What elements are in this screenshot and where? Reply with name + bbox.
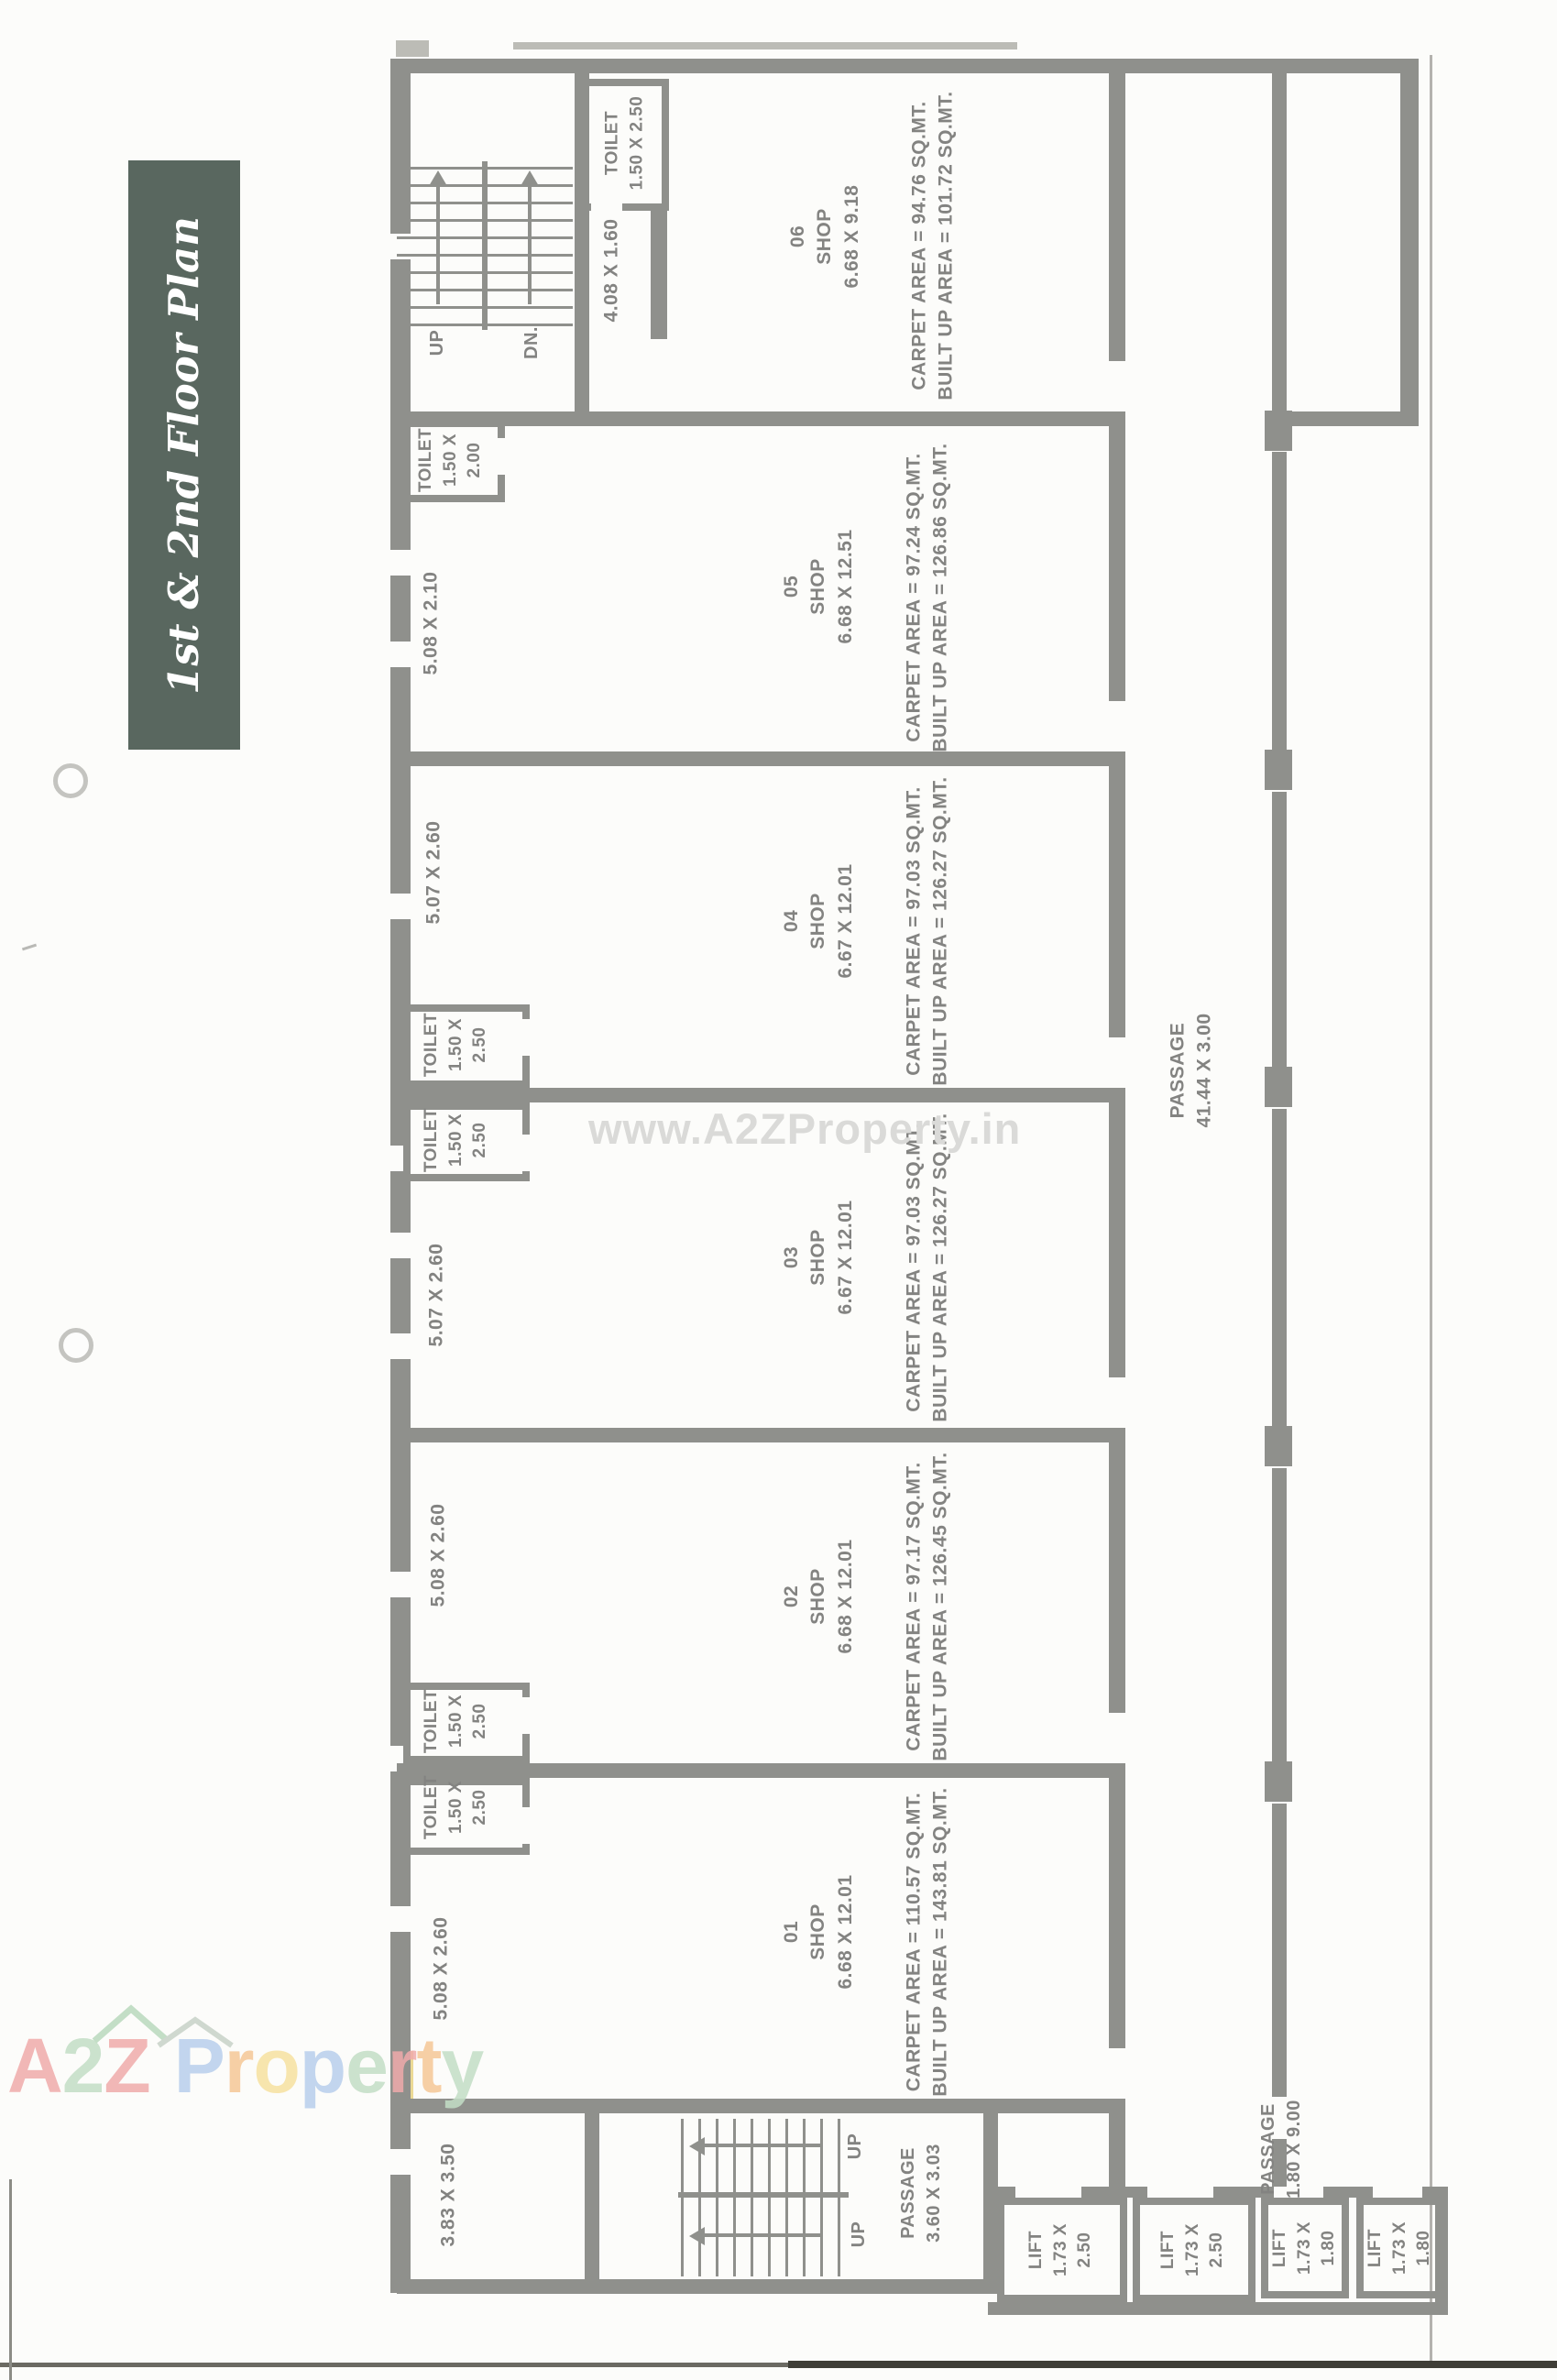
logo-letter: o (253, 2022, 299, 2111)
carpet-area: CARPET AREA = 97.17 SQ.MT. (904, 1462, 925, 1750)
shop-number: 03 (781, 1246, 802, 1268)
lift-door-gap (1373, 2187, 1422, 2198)
shop-05-info: 05 SHOP 6.68 X 12.51 (778, 529, 859, 643)
shop-size: 6.67 X 12.01 (835, 1200, 856, 1314)
shop-type: SHOP (807, 1568, 828, 1625)
wall-divider-06-05 (397, 411, 1125, 426)
shop-size: 6.68 X 9.18 (841, 185, 862, 289)
shop-type: SHOP (807, 893, 828, 949)
wall-shop-front (1109, 1763, 1125, 2048)
punch-hole (59, 1328, 93, 1363)
scan-edge-line (9, 2179, 12, 2380)
wall-colonnade (1272, 73, 1287, 412)
scan-edge-line (788, 2361, 1557, 2368)
shop-type: SHOP (807, 1903, 828, 1960)
shop-size: 6.68 X 12.51 (835, 529, 856, 643)
lift-label: LIFT 1.73 X 2.50 (1157, 2223, 1230, 2276)
watermark-text: www.A2ZProperty.in (588, 1103, 1021, 1154)
shop-04-areas: CARPET AREA = 97.03 SQ.MT. BUILT UP AREA… (901, 776, 955, 1085)
stair-up-arrow-icon (689, 2137, 705, 2155)
shop-number: 05 (781, 576, 802, 598)
wall-divider-04-03 (397, 1088, 1125, 1102)
punch-hole (53, 763, 88, 798)
column (1265, 750, 1292, 790)
shop-02-info: 02 SHOP 6.68 X 12.01 (778, 1539, 859, 1653)
passage-lift-label: PASSAGE 1.80 X 9.00 (1255, 2100, 1307, 2199)
shop-06-info: 06 SHOP 6.68 X 9.18 (784, 185, 865, 289)
stair-up-arrow-icon (429, 170, 447, 186)
wall-divider-01-stair (397, 2099, 1125, 2113)
window-gap (389, 642, 412, 667)
shop-01-info: 01 SHOP 6.68 X 12.01 (778, 1874, 859, 1989)
toilet-label: TOILET 1.50 X 2.50 (600, 96, 649, 191)
builtup-area: BUILT UP AREA = 101.72 SQ.MT. (936, 91, 957, 400)
logo-letter: y (441, 2022, 483, 2111)
builtup-area: BUILT UP AREA = 143.81 SQ.MT. (930, 1787, 951, 2096)
logo-letter: p (300, 2022, 345, 2111)
lift-door-gap (1147, 2187, 1213, 2198)
wall-corner-room-right (585, 2113, 599, 2279)
door-gap (519, 1019, 530, 1056)
logo-letter: t (416, 2022, 441, 2111)
wall-colonnade (1272, 792, 1287, 1067)
scanned-floor-plan-page: 1st & 2nd Floor Plan (0, 0, 1557, 2380)
wall-shop-front (1109, 751, 1125, 1037)
pen-mark (22, 944, 37, 951)
wall-lift-right (1435, 2187, 1448, 2315)
logo-letter: Z (104, 2022, 149, 2111)
shop-04-rear-dim: 5.07 X 2.60 (420, 821, 446, 925)
wall-top (392, 59, 1419, 73)
wall-shop06-back (651, 209, 667, 339)
window-gap (389, 550, 412, 576)
window-gap (389, 1333, 412, 1359)
column (1265, 1426, 1292, 1466)
wall-colonnade (1272, 1468, 1287, 1761)
stair-dn-arrow-icon (521, 170, 539, 186)
column (1265, 1761, 1292, 1802)
shop-number: 04 (781, 910, 802, 932)
carpet-area: CARPET AREA = 110.57 SQ.MT. (904, 1793, 925, 2091)
wall-divider-03-02 (397, 1428, 1125, 1442)
lift-label: LIFT 1.73 X 1.80 (1364, 2221, 1437, 2275)
page-title: 1st & 2nd Floor Plan (157, 171, 212, 740)
column (1265, 1067, 1292, 1107)
shop-01-areas: CARPET AREA = 110.57 SQ.MT. BUILT UP ARE… (901, 1787, 955, 2096)
shop-01-rear-dim: 5.08 X 2.60 (427, 1917, 454, 2021)
lift-label: LIFT 1.73 X 1.80 (1268, 2221, 1342, 2275)
brand-logo: A2ZProperty (7, 2022, 483, 2111)
stair-arrow-shaft (704, 2144, 823, 2147)
wall-stair-lift-divider (983, 2113, 998, 2293)
lobby-dim-label: 4.08 X 1.60 (598, 219, 624, 323)
window-gap (389, 1233, 412, 1258)
stair-arrow-shaft (436, 185, 440, 304)
stair-up-label: UP (842, 2133, 868, 2160)
staircase-bottom (681, 2119, 846, 2276)
logo-letter: A (7, 2022, 62, 2111)
wall-top-notch (396, 40, 429, 57)
wall-divider-05-04 (397, 751, 1125, 766)
stair-arrow-shaft (528, 185, 532, 304)
toilet-label: TOILET 1.50 X 2.50 (420, 1775, 493, 1839)
wall-right-chamber (1272, 411, 1419, 426)
logo-letter: e (345, 2022, 388, 2111)
stair-up-arrow-icon (689, 2227, 705, 2245)
shop-number: 06 (787, 225, 808, 247)
logo-letter: P (174, 2022, 225, 2111)
stair-dn-label: DN. (519, 326, 544, 359)
shop-number: 02 (781, 1585, 802, 1607)
column (1265, 411, 1292, 451)
toilet-label: TOILET 1.50 X 2.00 (414, 428, 488, 492)
logo-letter: 2 (62, 2022, 104, 2111)
shop-02-rear-dim: 5.08 X 2.60 (424, 1504, 451, 1607)
builtup-area: BUILT UP AREA = 126.27 SQ.MT. (930, 1113, 951, 1421)
shop-type: SHOP (807, 1229, 828, 1286)
toilet-label: TOILET 1.50 X 2.50 (420, 1013, 493, 1077)
wall-top-step (513, 42, 1017, 49)
logo-letter: r (388, 2022, 417, 2111)
toilet-label: TOILET 1.50 X 2.50 (420, 1108, 493, 1172)
carpet-area: CARPET AREA = 97.03 SQ.MT. (904, 1123, 925, 1411)
carpet-area: CARPET AREA = 97.24 SQ.MT. (904, 453, 925, 741)
builtup-area: BUILT UP AREA = 126.86 SQ.MT. (930, 443, 951, 751)
shop-05-areas: CARPET AREA = 97.24 SQ.MT. BUILT UP AREA… (901, 443, 955, 751)
stair-up-label: UP (846, 2221, 872, 2248)
window-gap (389, 2149, 412, 2175)
shop-03-areas: CARPET AREA = 97.03 SQ.MT. BUILT UP AREA… (901, 1113, 955, 1421)
builtup-area: BUILT UP AREA = 126.45 SQ.MT. (930, 1452, 951, 1760)
door-gap (519, 1697, 530, 1734)
door-gap (519, 1135, 530, 1171)
shop-05-rear-dim: 5.08 X 2.10 (417, 572, 444, 675)
wall-bottom (397, 2279, 997, 2294)
shop-03-info: 03 SHOP 6.67 X 12.01 (778, 1200, 859, 1314)
wall-right-top (1400, 59, 1419, 418)
wall-divider-02-01 (397, 1763, 1125, 1778)
passage-main-label: PASSAGE 41.44 X 3.00 (1165, 1013, 1219, 1127)
shop-number: 01 (781, 1921, 802, 1943)
wall-shop-front (1109, 73, 1125, 361)
corner-room-dim: 3.83 X 3.50 (434, 2144, 461, 2247)
shop-size: 6.68 X 12.01 (835, 1874, 856, 1989)
lift-label: LIFT 1.73 X 2.50 (1025, 2223, 1098, 2276)
wall-colonnade (1272, 452, 1287, 750)
toilet-label: TOILET 1.50 X 2.50 (420, 1689, 493, 1753)
carpet-area: CARPET AREA = 94.76 SQ.MT. (909, 101, 930, 389)
stair-landing-line (678, 2192, 849, 2198)
shop-type: SHOP (814, 208, 835, 265)
shop-03-rear-dim: 5.07 X 2.60 (422, 1244, 449, 1347)
door-gap (591, 202, 622, 213)
stair-stringer (482, 161, 488, 330)
lift-door-gap (1015, 2187, 1081, 2198)
shop-06-areas: CARPET AREA = 94.76 SQ.MT. BUILT UP AREA… (906, 91, 960, 400)
door-gap (496, 438, 507, 475)
shop-02-areas: CARPET AREA = 97.17 SQ.MT. BUILT UP AREA… (901, 1452, 955, 1760)
wall-colonnade (1272, 1109, 1287, 1426)
stair-arrow-shaft (704, 2233, 823, 2237)
window-gap (389, 1572, 412, 1597)
wall-shop-front (1109, 1088, 1125, 1377)
window-gap (389, 894, 412, 919)
logo-letter: r (225, 2022, 254, 2111)
builtup-area: BUILT UP AREA = 126.27 SQ.MT. (930, 776, 951, 1085)
shop-size: 6.67 X 12.01 (835, 863, 856, 978)
door-gap (519, 1807, 530, 1844)
wall-colonnade (1272, 1804, 1287, 2097)
window-gap (389, 1906, 412, 1932)
wall-shop-front (1109, 411, 1125, 701)
shop-size: 6.68 X 12.01 (835, 1539, 856, 1653)
stair-up-label: UP (424, 330, 450, 356)
passage-stair-label: PASSAGE 3.60 X 3.03 (895, 2144, 947, 2243)
wall-lift-bottom (988, 2302, 1448, 2315)
shop-04-info: 04 SHOP 6.67 X 12.01 (778, 863, 859, 978)
carpet-area: CARPET AREA = 97.03 SQ.MT. (904, 786, 925, 1075)
scan-edge-line (0, 2363, 788, 2367)
page-fold-line (1430, 55, 1432, 2364)
shop-type: SHOP (807, 558, 828, 615)
wall-shop-front (1109, 1428, 1125, 1713)
